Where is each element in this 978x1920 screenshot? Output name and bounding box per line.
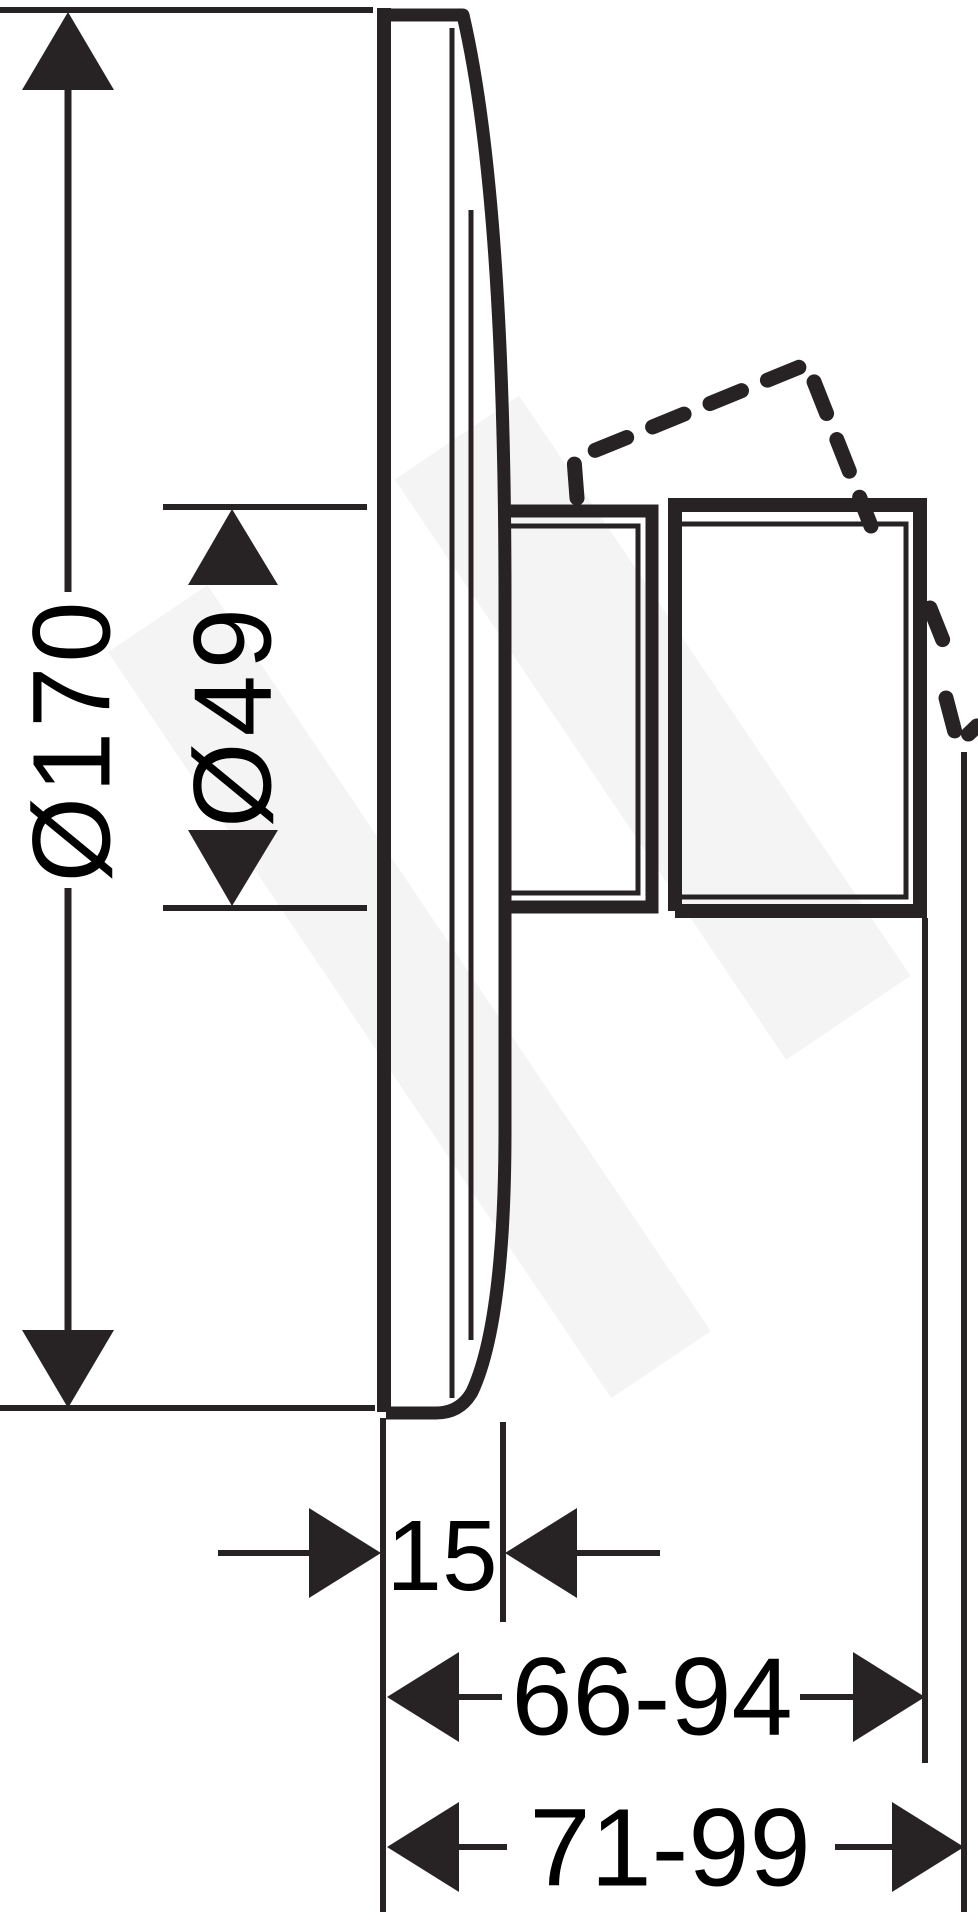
dim-total-projection-label: 71-99: [529, 1787, 810, 1910]
dim-plate-depth-arrow-right: [309, 1508, 381, 1598]
dim-body-projection-arrow-right: [853, 1652, 925, 1742]
dim-body-projection-label: 66-94: [511, 1636, 792, 1759]
rotated-handle-end-dash: [946, 698, 977, 744]
dim-plate-diameter-arrow-up: [22, 12, 114, 90]
dim-plate-diameter-arrow-down: [22, 1330, 114, 1408]
dim-plate-depth-arrow-left: [505, 1508, 577, 1598]
dim-total-projection-arrow-right: [892, 1802, 964, 1892]
dim-total-projection-arrow-left: [387, 1802, 459, 1892]
technical-drawing-canvas: Ø170 Ø49 15 66-94 71-99: [0, 0, 978, 1920]
dim-hub-diameter-arrow-up: [188, 509, 278, 585]
technical-drawing: Ø170 Ø49 15 66-94 71-99: [0, 0, 978, 1920]
dim-body-projection-arrow-left: [387, 1652, 459, 1742]
rotated-handle-side-dash: [930, 608, 950, 658]
dim-plate-depth-label: 15: [386, 1500, 497, 1612]
dim-plate-diameter-label: Ø170: [11, 597, 134, 882]
dim-hub-diameter-label: Ø49: [172, 602, 295, 828]
